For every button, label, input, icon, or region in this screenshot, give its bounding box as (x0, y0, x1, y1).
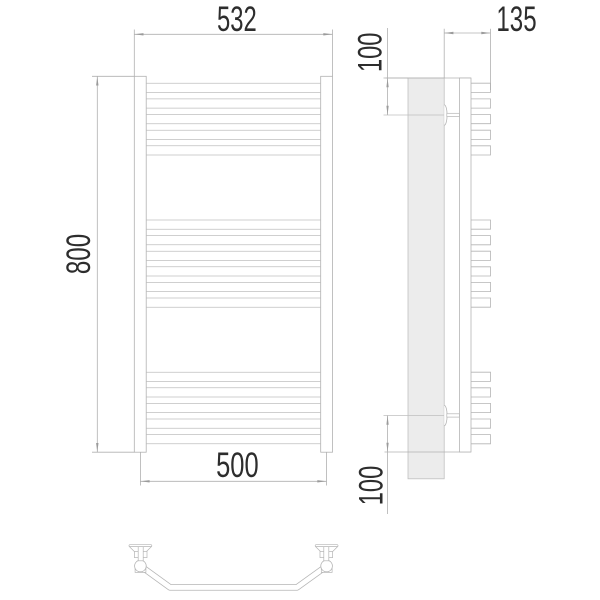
svg-text:135: 135 (496, 0, 536, 39)
svg-text:100: 100 (352, 466, 390, 506)
svg-text:500: 500 (216, 446, 259, 485)
svg-text:100: 100 (351, 33, 389, 73)
svg-text:532: 532 (217, 0, 257, 39)
svg-text:800: 800 (60, 234, 98, 274)
